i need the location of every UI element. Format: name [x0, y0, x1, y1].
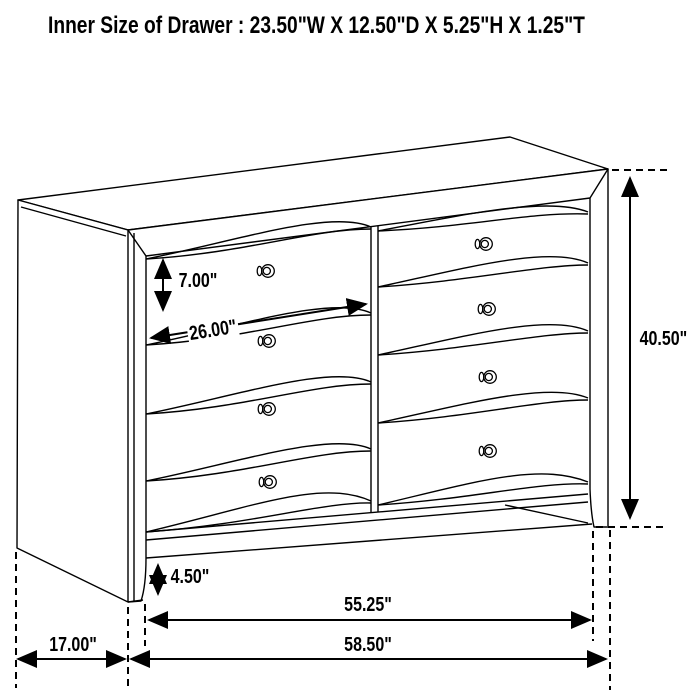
knob-icon: [475, 238, 492, 251]
left-side-panel: [17, 200, 128, 602]
dim-label-inner-width: 55.25": [343, 595, 394, 616]
knob-icon: [478, 303, 495, 316]
dimension-diagram: Inner Size of Drawer : 23.50"W X 12.50"D…: [0, 0, 700, 700]
knob-icon: [259, 476, 276, 489]
dim-label-overall-height: 40.50": [638, 329, 689, 350]
drawer-knobs: [257, 238, 496, 489]
dim-label-drawer-height: 7.00": [177, 271, 219, 292]
right-drawer-column: [378, 206, 588, 505]
knob-icon: [479, 445, 496, 458]
dresser-body: [17, 137, 608, 602]
dim-label-base-height: 4.50": [169, 567, 211, 588]
knob-icon: [258, 403, 275, 416]
knob-icon: [257, 265, 274, 278]
dim-arrow-drawer-width: [151, 304, 366, 338]
dim-label-depth: 17.00": [48, 635, 99, 656]
knob-icon: [479, 371, 496, 384]
dim-label-overall-width: 58.50": [343, 635, 394, 656]
knob-icon: [258, 335, 275, 348]
